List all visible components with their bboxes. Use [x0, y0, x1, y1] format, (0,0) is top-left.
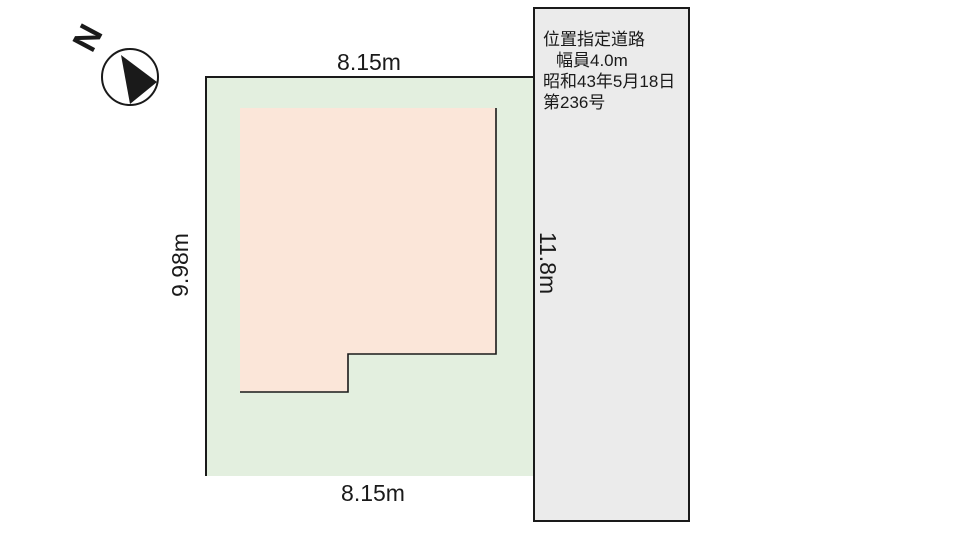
road-width-line: 幅員4.0m — [543, 50, 684, 71]
road-length-label: 11.8m — [533, 193, 563, 333]
road-number-line: 第236号 — [543, 92, 684, 113]
top-width-label: 8.15m — [205, 49, 533, 76]
compass-icon — [98, 45, 162, 111]
bottom-width-label: 8.15m — [205, 480, 541, 507]
site-plan-canvas: N 位置指定道路 幅員4.0m 昭和43年5月18日 第236号 8.15m 8… — [0, 0, 960, 540]
left-depth-label: 9.98m — [165, 195, 195, 335]
road-designation-line: 位置指定道路 — [543, 29, 684, 50]
road-date-line: 昭和43年5月18日 — [543, 71, 684, 92]
land-parcel — [205, 76, 533, 476]
